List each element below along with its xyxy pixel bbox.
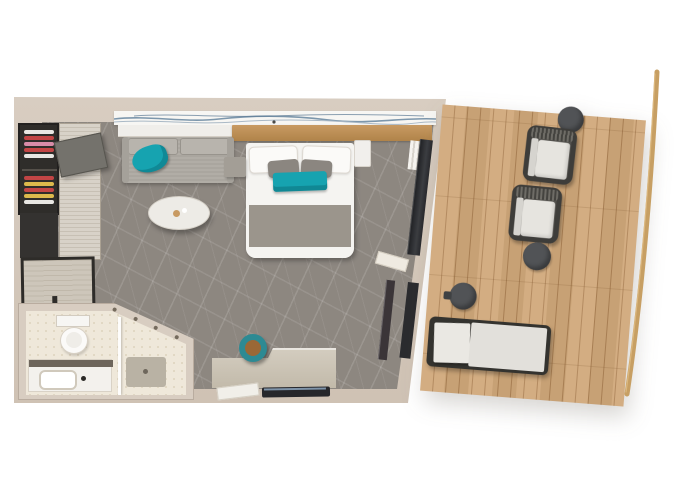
headboard-wood-shelf [232,125,432,141]
cabinet-handle [52,296,57,304]
balcony-armchair [522,124,578,185]
nightstand-right [354,140,371,167]
nightstand-left [224,157,246,177]
sun-lounger [426,316,552,375]
shower-control-knob [133,316,138,321]
garment [24,148,54,152]
round-stool [239,334,267,362]
garment [24,130,54,134]
stateroom [14,97,446,403]
garment [24,136,54,140]
garment [24,200,54,204]
wave-art-graphic [114,112,436,126]
bed-foot [246,247,354,258]
table-leg [443,291,452,300]
garment [24,154,54,158]
garment [24,194,54,198]
stateroom-floorplan [0,0,680,486]
garment [24,188,54,192]
clothes-rack-bottom [24,176,54,204]
shower-drain [143,369,148,374]
balcony-side-table [449,282,478,311]
wall-recess [20,213,58,258]
lounger-seat-cushion [468,322,547,372]
wall-art-wave-print [114,111,436,125]
chair-cushion [520,199,555,239]
vanity-counter [28,359,112,392]
bed-runner [249,205,351,249]
sofa-armrest [122,137,129,183]
toilet [60,327,88,354]
garment [24,182,54,186]
toilet-tank [56,315,90,327]
balcony-side-table [522,241,552,271]
garment [24,142,54,146]
minibar-cabinet [21,256,96,308]
shower-control-knob [153,325,158,330]
faucet [81,376,86,381]
balcony-armchair [508,184,563,245]
tv-screen-reflection [264,387,326,390]
wardrobe-shelves [18,123,59,215]
clothes-rack-top [24,130,54,158]
tv [262,386,330,397]
sink [39,370,77,390]
table-decor [173,210,180,217]
ship-railing [605,58,675,408]
chair-cushion [534,140,570,180]
sofa [122,137,234,183]
wall-shelf [118,125,234,137]
lounger-backrest-cushion [433,322,470,363]
garment [24,176,54,180]
wardrobe-shelf-divider [22,169,57,171]
teal-bed-pillow [273,171,328,192]
coffee-table [148,196,210,230]
shower-glass-divider [118,317,121,395]
shower-control-knob [112,307,117,312]
toilet-seat [66,332,82,348]
sofa-back-cushion [180,138,230,155]
double-bed [246,143,354,258]
vanity-backsplash [29,360,113,367]
table-decor [182,208,187,213]
